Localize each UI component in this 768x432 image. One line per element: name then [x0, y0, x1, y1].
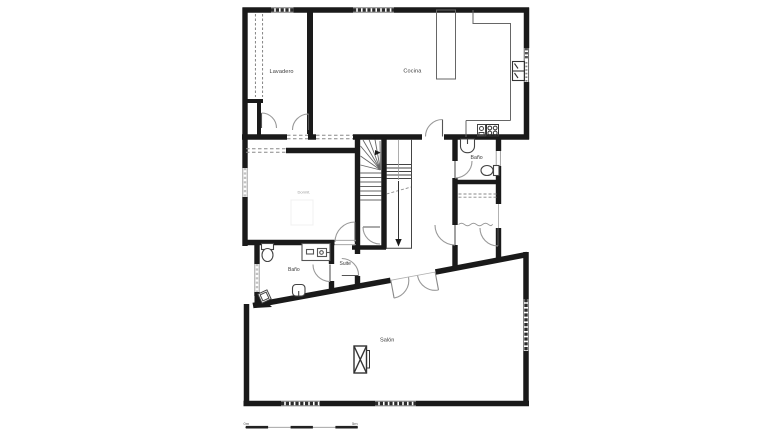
svg-text:Suite: Suite	[340, 261, 352, 267]
svg-text:Lavadero: Lavadero	[270, 69, 294, 75]
svg-text:0m: 0m	[244, 421, 250, 426]
svg-text:Baño: Baño	[471, 155, 483, 161]
svg-text:5m: 5m	[352, 421, 358, 426]
svg-text:Cocina: Cocina	[403, 69, 422, 75]
svg-text:Dormit.: Dormit.	[298, 190, 311, 195]
svg-text:Salón: Salón	[380, 338, 394, 344]
svg-text:Baño: Baño	[288, 267, 300, 273]
